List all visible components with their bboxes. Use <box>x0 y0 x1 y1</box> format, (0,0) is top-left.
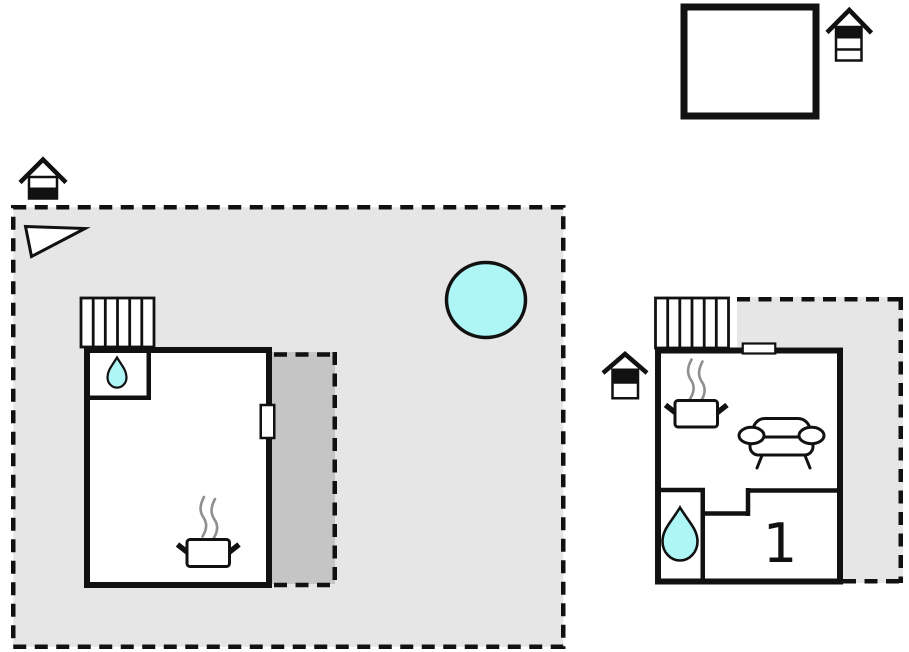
sofa-arm-left <box>739 427 764 443</box>
patio-area <box>272 352 335 584</box>
house-marker-annex-icon <box>827 10 872 61</box>
floor-plan: 1 <box>0 0 909 652</box>
stairs-icon <box>81 298 154 347</box>
house-marker-floor-band <box>613 370 639 384</box>
pot-body <box>187 540 230 567</box>
floor-plan-canvas: 1 <box>0 0 909 652</box>
door <box>261 405 275 438</box>
stairs-icon <box>656 298 729 348</box>
main-house-patio <box>272 352 337 586</box>
house-marker-guest-icon <box>603 354 647 398</box>
pot-body <box>675 401 718 428</box>
hot-tub-icon <box>447 263 526 338</box>
annex-building <box>684 7 816 116</box>
house-marker-floor-band <box>29 188 57 199</box>
sofa-arm-right <box>799 427 824 443</box>
window <box>743 344 776 354</box>
bedroom-number: 1 <box>763 512 797 575</box>
house-marker-floor-band <box>836 27 862 39</box>
house-marker-main-icon <box>20 160 66 199</box>
